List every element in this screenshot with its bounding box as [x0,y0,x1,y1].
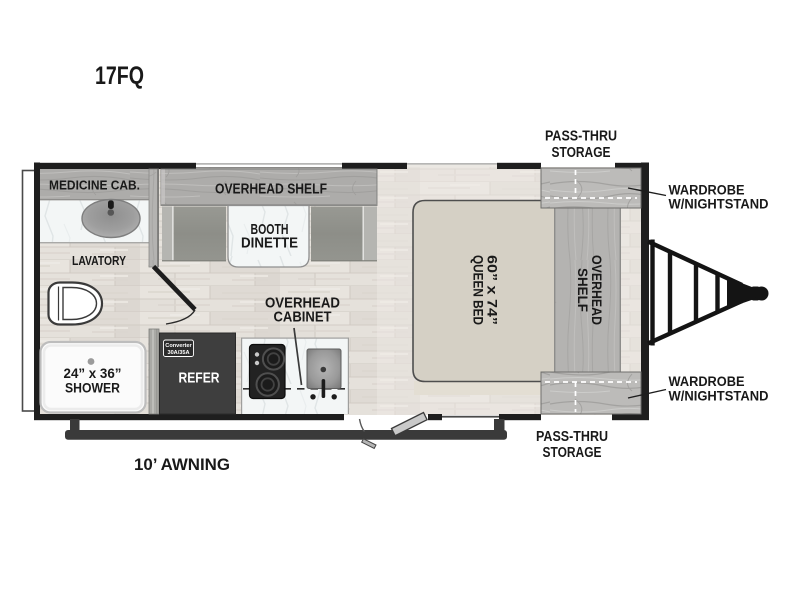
svg-text:OVERHEAD SHELF: OVERHEAD SHELF [215,182,327,198]
svg-text:W/NIGHTSTAND: W/NIGHTSTAND [669,197,769,212]
svg-text:CABINET: CABINET [274,310,332,326]
svg-text:STORAGE: STORAGE [552,144,611,161]
svg-text:WARDROBE: WARDROBE [669,183,745,198]
svg-text:24” x 36”: 24” x 36” [64,366,122,381]
svg-text:WARDROBE: WARDROBE [669,374,745,389]
svg-text:SHOWER: SHOWER [65,381,120,396]
svg-text:30A/35A: 30A/35A [167,350,189,356]
svg-text:LAVATORY: LAVATORY [72,253,126,268]
svg-text:W/NIGHTSTAND: W/NIGHTSTAND [669,389,769,404]
svg-text:10’ AWNING: 10’ AWNING [134,455,230,474]
svg-text:60” x 74”: 60” x 74” [485,255,500,325]
svg-text:PASS-THRU: PASS-THRU [536,428,608,445]
svg-text:SHELF: SHELF [575,268,590,312]
svg-text:QUEEN BED: QUEEN BED [471,255,486,325]
svg-text:Converter: Converter [165,343,192,349]
svg-text:MEDICINE CAB.: MEDICINE CAB. [49,178,140,193]
svg-text:REFER: REFER [179,370,220,387]
svg-text:17FQ: 17FQ [95,62,144,90]
svg-text:PASS-THRU: PASS-THRU [545,128,617,145]
svg-text:STORAGE: STORAGE [543,444,602,461]
svg-text:DINETTE: DINETTE [241,236,298,252]
svg-text:OVERHEAD: OVERHEAD [589,255,604,325]
